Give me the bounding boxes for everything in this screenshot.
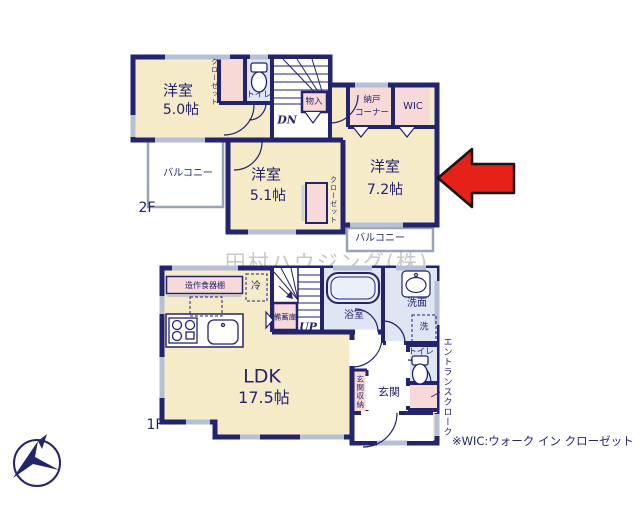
toilet-icon-2f (251, 63, 267, 92)
washroom-label: 洗面 (407, 299, 427, 309)
room-7-2-size: 7.2帖 (367, 183, 403, 197)
closet-left-label: クローゼット (211, 58, 218, 106)
pantry-label: 備蓄庫 (274, 313, 297, 321)
bath-label: 浴室 (344, 311, 364, 321)
nando-corner-label-line2: コーナー (355, 109, 389, 118)
entrance-cloak-label: エントランスクローク (442, 337, 451, 437)
laundry-label: 洗 (419, 324, 428, 333)
wic-label: WIC (403, 102, 423, 112)
room-5-0-size: 5.0帖 (163, 103, 199, 117)
storage-label: 物入 (305, 98, 322, 107)
floor-plan-canvas: 田村ハウジング(株) (0, 0, 640, 518)
entrance-vestibule (352, 413, 433, 441)
2f-closet-left-box (221, 59, 243, 101)
wic-footnote: ※WIC:ウォーク イン クローゼット (452, 433, 634, 449)
kitchen-sink-icon (208, 320, 238, 344)
washbasin-icon (402, 271, 430, 297)
compass-icon (13, 434, 60, 486)
stairs-up-label: UP (299, 322, 317, 333)
room-5-1-name: 洋室 (251, 168, 281, 183)
bathtub-icon (327, 273, 379, 303)
floor-1f-plan (162, 268, 440, 447)
entrance-label: 玄関 (378, 387, 400, 398)
ldk-size: 17.5帖 (238, 390, 290, 406)
nando-corner-label-line1: 納戸 (363, 96, 380, 105)
cupboard-label: 造作食器棚 (185, 282, 225, 290)
floor1-label: 1F (147, 418, 164, 432)
room-7-2-name: 洋室 (370, 160, 400, 175)
balcony-right-label: バルコニー (355, 234, 405, 244)
entrance-storage-label: 玄関収納 (356, 375, 364, 409)
fridge-label: 冷 (251, 282, 261, 292)
stove-icon (169, 318, 197, 343)
2f-closet-mid-box (306, 183, 327, 223)
toilet-icon-1f (412, 356, 428, 384)
closet-mid-label: クローゼット (330, 176, 337, 224)
toilet-2f-label: トイレ (246, 91, 272, 100)
red-highlight-arrow (438, 149, 514, 207)
toilet-1f-label: トイレ (408, 348, 434, 357)
balcony-left-label: バルコニー (163, 169, 213, 179)
stairs-down-label: DN (277, 115, 297, 126)
floor2-label: 2F (139, 201, 156, 215)
room-5-0-name: 洋室 (163, 84, 193, 99)
ldk-name: LDK (243, 368, 281, 387)
nando-corner-box (351, 88, 391, 126)
room-5-1-size: 5.1帖 (250, 189, 286, 203)
